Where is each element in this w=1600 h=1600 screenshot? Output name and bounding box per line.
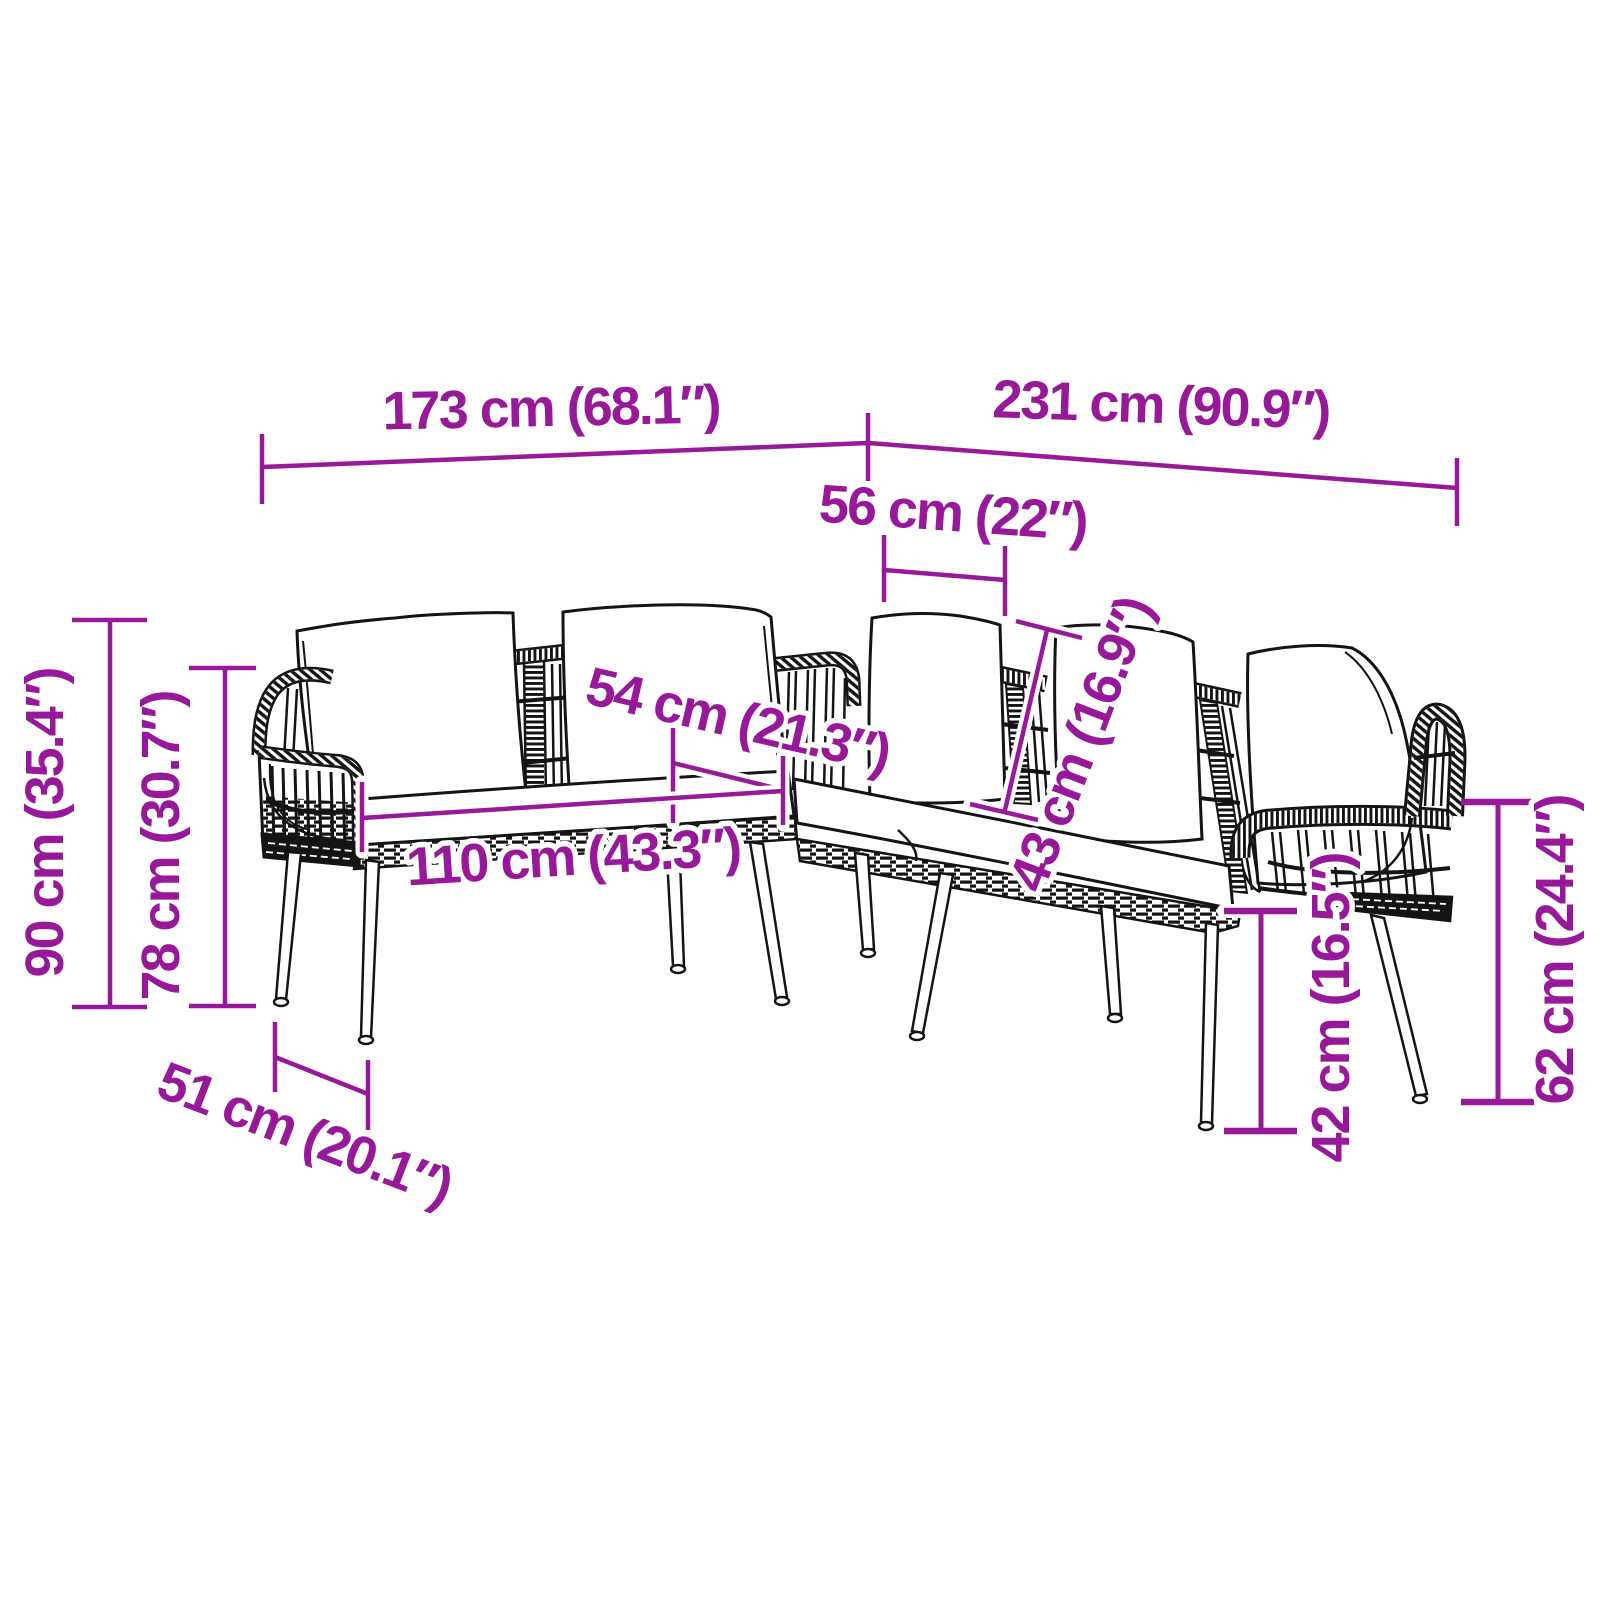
svg-text:231 cm (90.9″): 231 cm (90.9″)	[991, 369, 1330, 441]
svg-text:42 cm (16.5″): 42 cm (16.5″)	[1301, 853, 1361, 1162]
svg-text:78 cm (30.7″): 78 cm (30.7″)	[131, 691, 191, 1000]
svg-text:90 cm (35.4″): 90 cm (35.4″)	[15, 668, 75, 977]
svg-text:173 cm (68.1″): 173 cm (68.1″)	[382, 374, 720, 441]
svg-text:62 cm (24.4″): 62 cm (24.4″)	[1525, 795, 1585, 1104]
